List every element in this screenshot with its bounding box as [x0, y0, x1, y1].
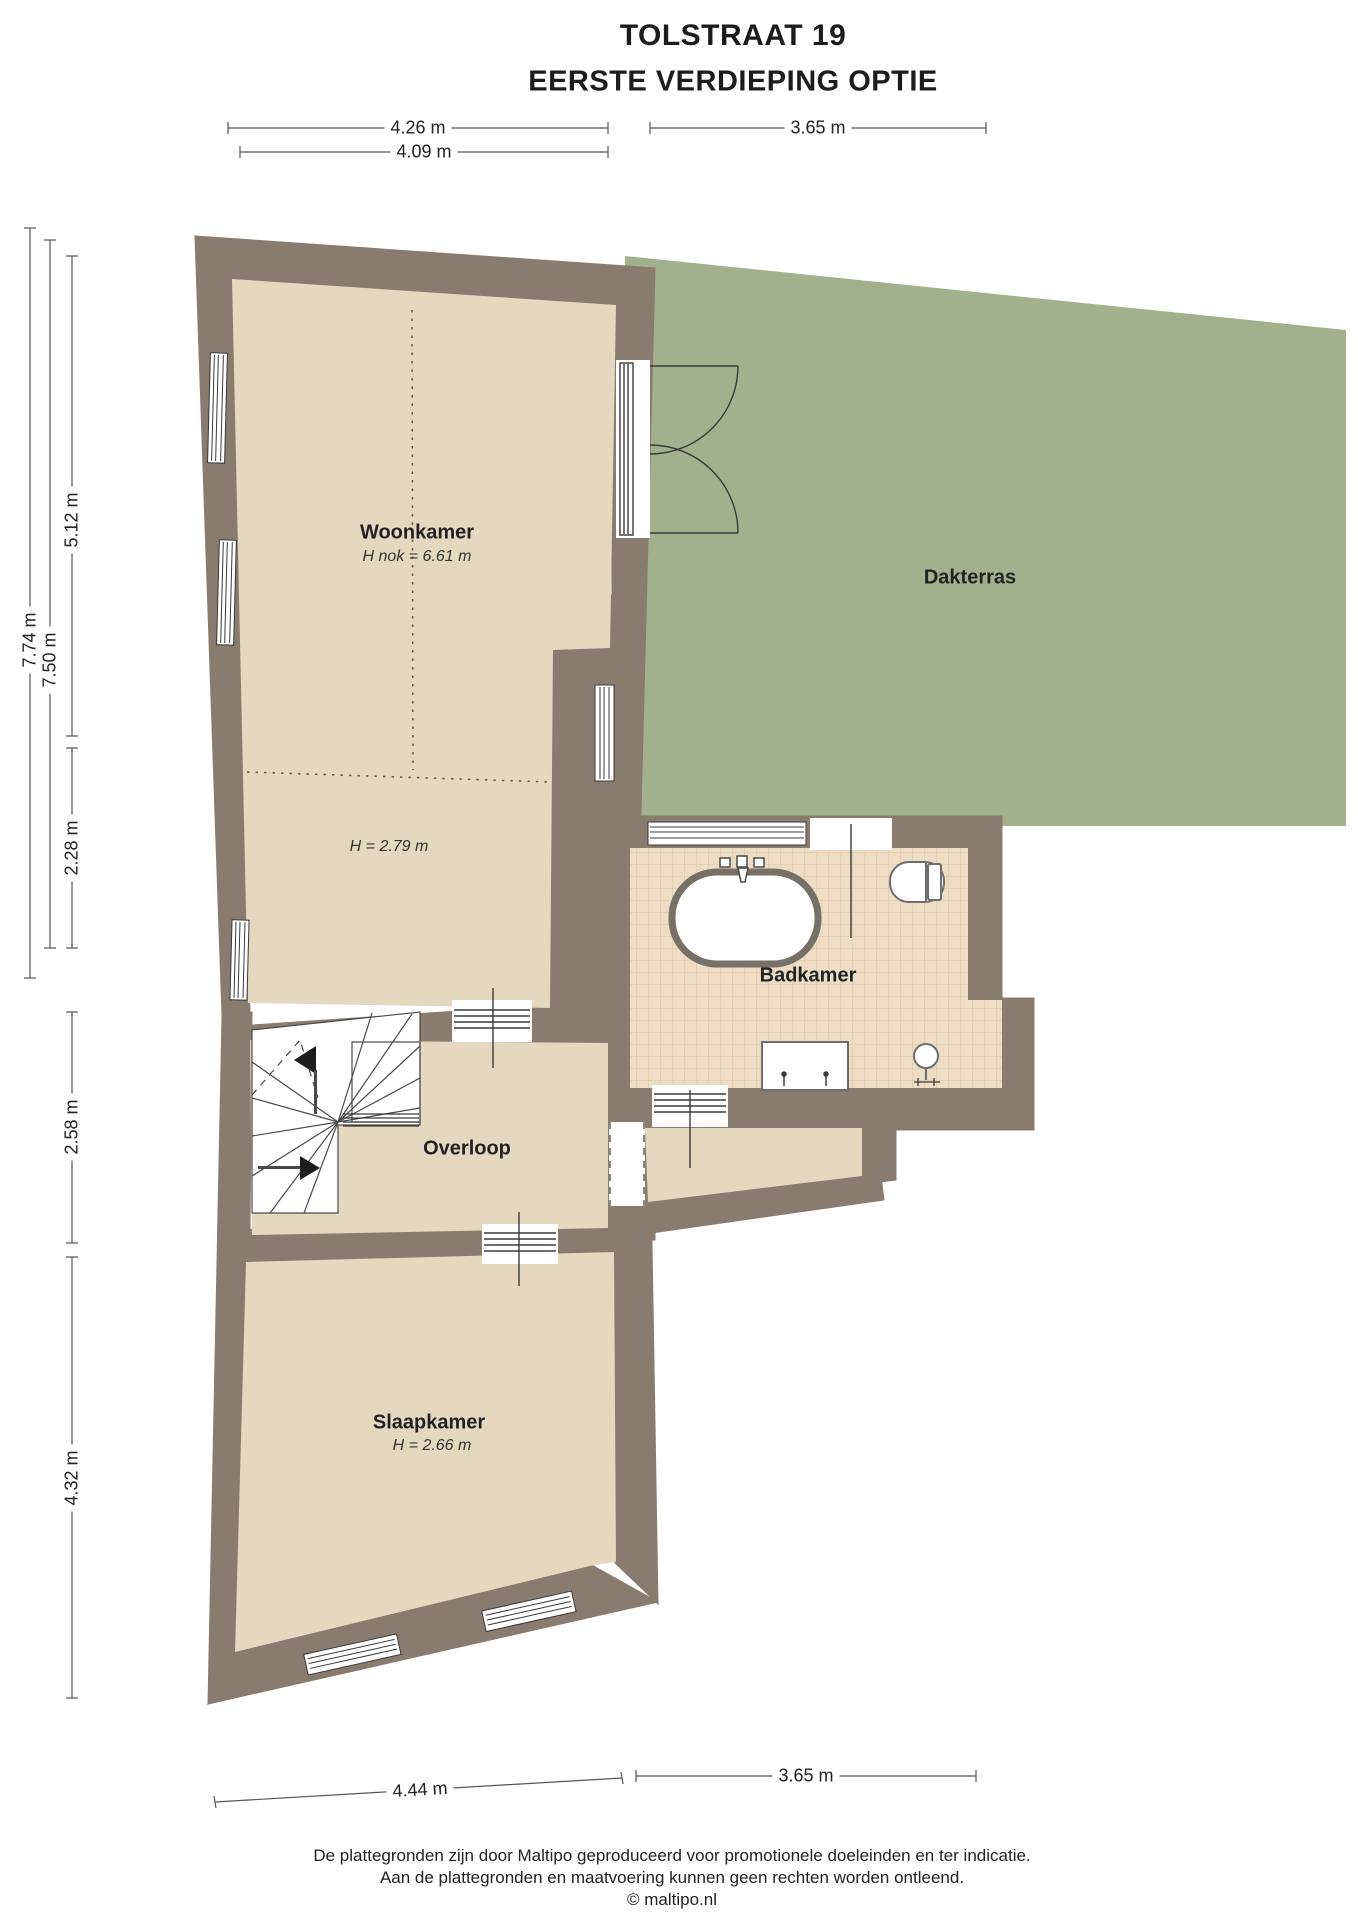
dim-left-774 — [24, 228, 36, 978]
plan-subtitle: EERSTE VERDIEPING OPTIE — [528, 66, 938, 99]
vanity-symbol — [762, 1042, 848, 1090]
room-label-dakterras: Dakterras — [924, 567, 1016, 590]
dim-label-top-426: 4.26 m — [384, 118, 451, 139]
dim-left-750 — [44, 240, 56, 948]
dim-label-bottom-444: 4.44 m — [386, 1778, 454, 1803]
dim-label-left-228: 2.28 m — [62, 814, 83, 881]
footer-disclaimer-line2: Aan de plattegronden en maatvoering kunn… — [380, 1868, 964, 1888]
footer-copyright: © maltipo.nl — [627, 1890, 717, 1910]
room-label-badkamer: Badkamer — [760, 965, 857, 988]
toilet-symbol — [890, 862, 944, 902]
room-label-overloop: Overloop — [423, 1138, 511, 1161]
passage-opening — [609, 1122, 645, 1206]
window-icon — [217, 540, 237, 645]
floor-plan-canvas — [0, 0, 1358, 1920]
dim-label-left-750: 7.50 m — [40, 626, 61, 693]
dim-label-top-365: 3.65 m — [784, 118, 851, 139]
wall-slaapkamer-right — [614, 1244, 658, 1604]
dim-label-top-409: 4.09 m — [390, 142, 457, 163]
room-label-slaapkamer: Slaapkamer — [373, 1412, 485, 1435]
dakterras-area — [625, 256, 1346, 826]
dim-label-left-512: 5.12 m — [62, 486, 83, 553]
plan-title: TOLSTRAAT 19 — [620, 19, 847, 53]
room-height-woonkamer-low: H = 2.79 m — [350, 838, 429, 856]
window-icon — [648, 822, 806, 845]
dim-label-left-774: 7.74 m — [20, 606, 41, 673]
window-icon — [595, 685, 614, 781]
room-height-woonkamer: H nok = 6.61 m — [363, 548, 472, 566]
footer-disclaimer-line1: De plattegronden zijn door Maltipo gepro… — [313, 1846, 1030, 1866]
dim-label-bottom-365: 3.65 m — [772, 1766, 839, 1787]
dim-label-left-258: 2.58 m — [62, 1093, 83, 1160]
room-label-woonkamer: Woonkamer — [360, 522, 474, 545]
window-icon — [230, 920, 249, 1000]
room-height-slaapkamer: H = 2.66 m — [393, 1437, 472, 1455]
dim-label-left-432: 4.32 m — [62, 1444, 83, 1511]
window-icon — [208, 353, 228, 463]
floorplan-page: { "title": { "line1": "TOLSTRAAT 19", "l… — [0, 0, 1358, 1920]
